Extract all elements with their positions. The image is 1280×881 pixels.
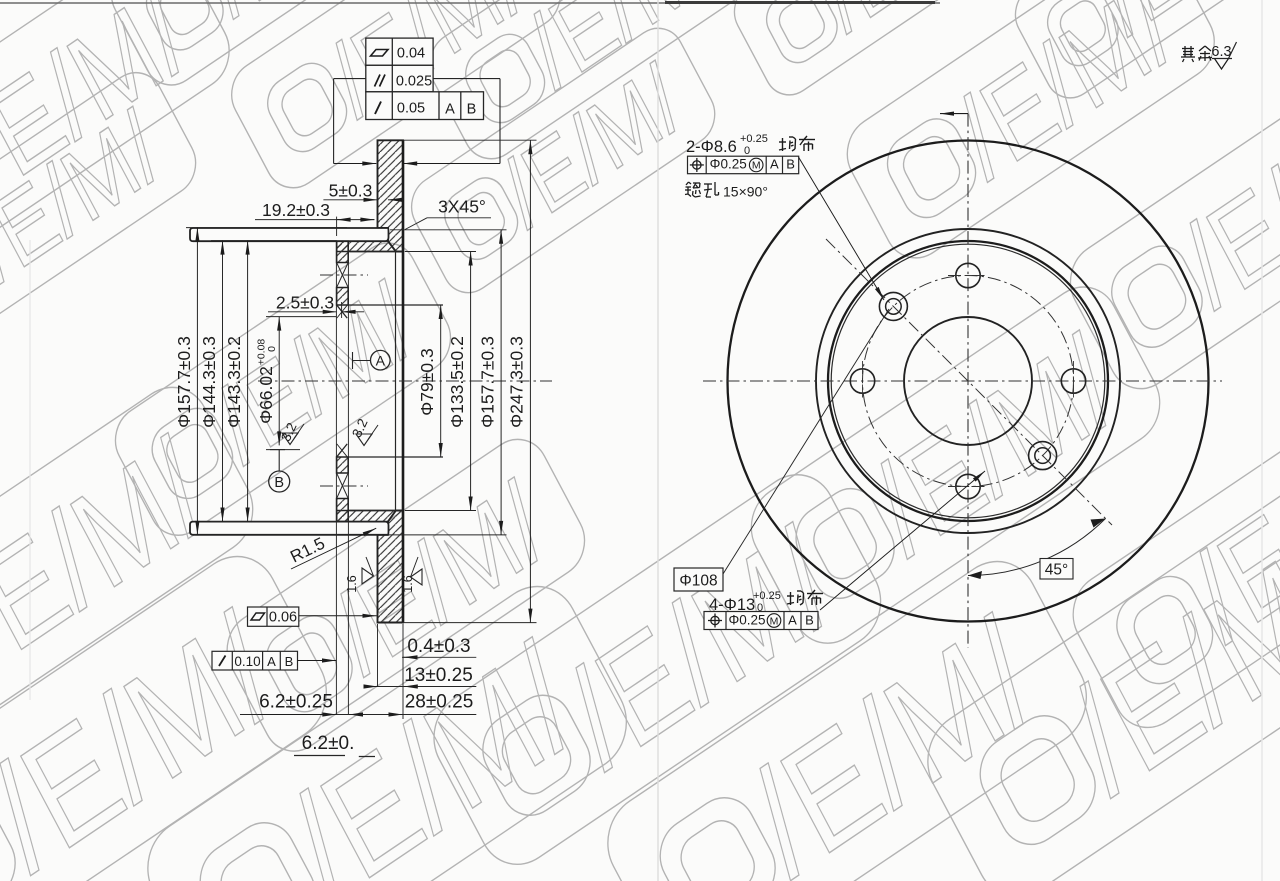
- svg-text:0: 0: [744, 145, 750, 157]
- svg-text:28±0.25: 28±0.25: [405, 692, 474, 713]
- svg-text:B: B: [786, 157, 795, 172]
- svg-text:0: 0: [266, 346, 278, 352]
- svg-text:+0.25: +0.25: [753, 590, 781, 602]
- svg-text:Φ0.25: Φ0.25: [710, 157, 747, 172]
- svg-text:Φ79±0.3: Φ79±0.3: [417, 348, 437, 415]
- svg-text:1.6: 1.6: [345, 575, 359, 592]
- svg-text:A: A: [445, 102, 455, 118]
- svg-text:B: B: [467, 102, 477, 118]
- svg-text:0.06: 0.06: [269, 610, 297, 626]
- svg-text:19.2±0.3: 19.2±0.3: [262, 200, 330, 220]
- svg-text:B: B: [285, 654, 294, 669]
- svg-text:3X45°: 3X45°: [438, 197, 486, 217]
- svg-text:5±0.3: 5±0.3: [329, 181, 373, 201]
- svg-text:B: B: [805, 613, 814, 628]
- svg-text:Φ0.25: Φ0.25: [728, 613, 765, 628]
- svg-text:0.04: 0.04: [397, 46, 425, 62]
- svg-text:Φ247.3±0.3: Φ247.3±0.3: [507, 336, 527, 428]
- svg-text:6.2±0.: 6.2±0.: [302, 733, 355, 754]
- svg-text:6.2±0.25: 6.2±0.25: [259, 692, 333, 713]
- svg-text:0.10: 0.10: [234, 654, 260, 669]
- svg-text:Φ66.02: Φ66.02: [256, 366, 276, 424]
- svg-text:Φ108: Φ108: [679, 573, 717, 590]
- svg-text:13±0.25: 13±0.25: [404, 665, 473, 686]
- svg-text:Φ143.3±0.2: Φ143.3±0.2: [224, 336, 244, 428]
- svg-text:15×90°: 15×90°: [723, 184, 768, 200]
- svg-text:A: A: [788, 613, 797, 628]
- svg-text:M: M: [770, 616, 779, 628]
- svg-text:Φ157.7±0.3: Φ157.7±0.3: [174, 336, 194, 428]
- svg-text:A: A: [376, 353, 386, 369]
- svg-text:Φ133.5±0.2: Φ133.5±0.2: [447, 336, 467, 428]
- svg-text:B: B: [274, 475, 284, 491]
- svg-text:0.025: 0.025: [396, 74, 432, 90]
- svg-text:+0.25: +0.25: [740, 133, 768, 145]
- svg-text:2.5±0.3: 2.5±0.3: [276, 293, 334, 313]
- svg-text:1.6: 1.6: [401, 575, 415, 592]
- svg-text:M: M: [752, 160, 761, 172]
- svg-text:Φ144.3±0.3: Φ144.3±0.3: [199, 336, 219, 428]
- svg-text:2-Φ8.6: 2-Φ8.6: [686, 138, 737, 156]
- svg-text:A: A: [770, 157, 779, 172]
- svg-text:0.4±0.3: 0.4±0.3: [407, 636, 470, 657]
- svg-text:0.05: 0.05: [397, 101, 425, 117]
- svg-text:45°: 45°: [1045, 562, 1068, 579]
- svg-text:Φ157.7±0.3: Φ157.7±0.3: [478, 336, 498, 428]
- svg-text:A: A: [267, 654, 276, 669]
